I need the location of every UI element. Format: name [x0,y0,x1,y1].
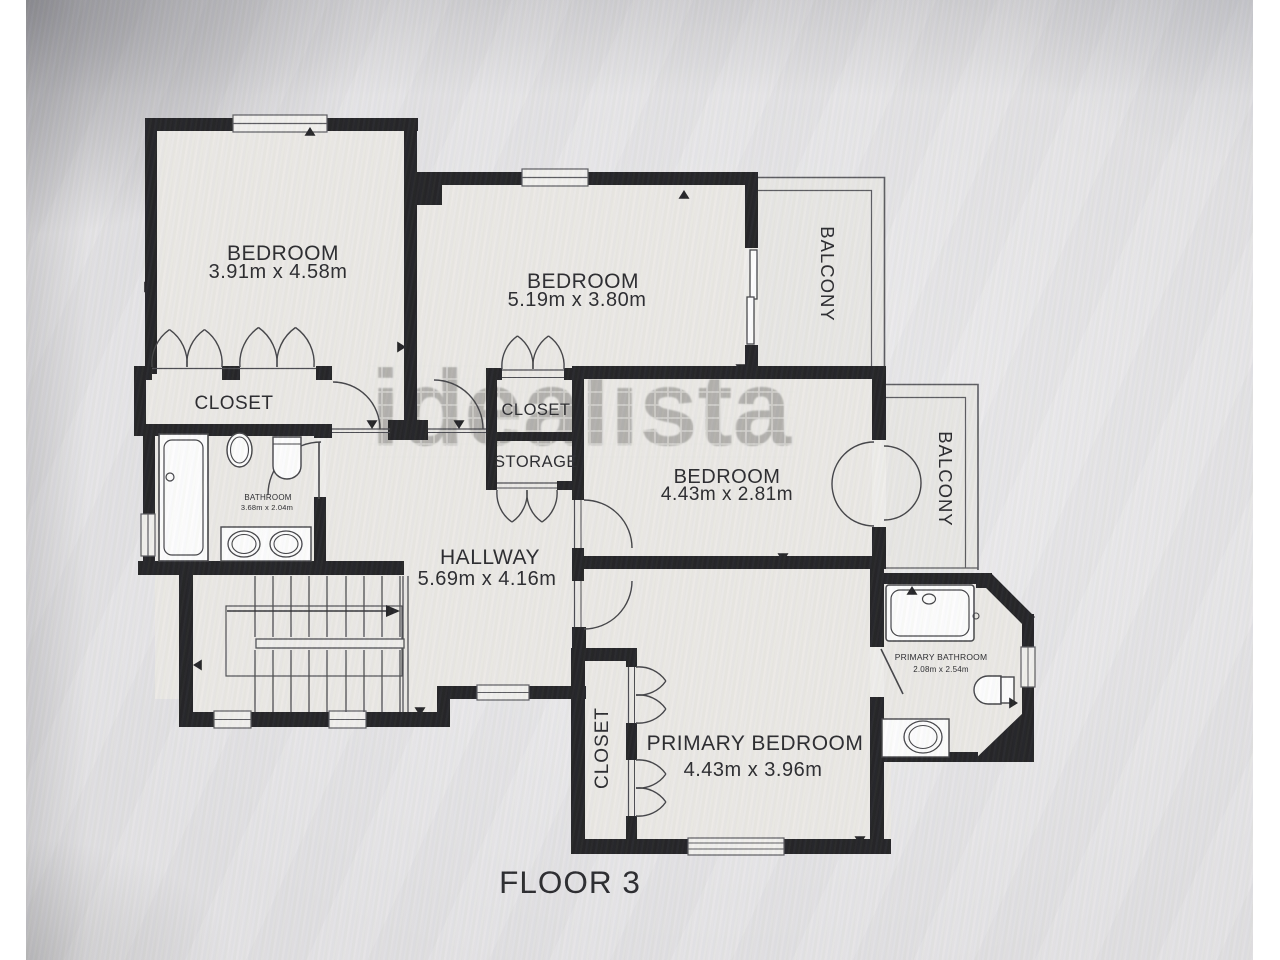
svg-text:PRIMARY BEDROOM: PRIMARY BEDROOM [647,732,864,755]
svg-text:3.68m x 2.04m: 3.68m x 2.04m [241,503,293,512]
svg-text:2.08m x 2.54m: 2.08m x 2.54m [913,665,969,674]
svg-text:BALCONY: BALCONY [935,431,956,526]
svg-text:PRIMARY BATHROOM: PRIMARY BATHROOM [895,652,987,662]
svg-text:5.19m x 3.80m: 5.19m x 3.80m [508,289,647,311]
svg-text:BATHROOM: BATHROOM [244,493,291,502]
svg-text:4.43m x 2.81m: 4.43m x 2.81m [661,484,793,505]
svg-text:HALLWAY: HALLWAY [440,546,540,569]
svg-text:5.69m x 4.16m: 5.69m x 4.16m [418,568,557,590]
svg-text:4.43m x 3.96m: 4.43m x 3.96m [684,759,823,781]
svg-text:STORAGE: STORAGE [494,453,578,471]
svg-text:3.91m x 4.58m: 3.91m x 4.58m [209,261,348,283]
svg-text:CLOSET: CLOSET [592,707,613,789]
svg-text:CLOSET: CLOSET [194,393,273,414]
svg-text:CLOSET: CLOSET [501,401,570,419]
svg-text:FLOOR 3: FLOOR 3 [499,864,641,900]
svg-text:BALCONY: BALCONY [817,226,838,321]
